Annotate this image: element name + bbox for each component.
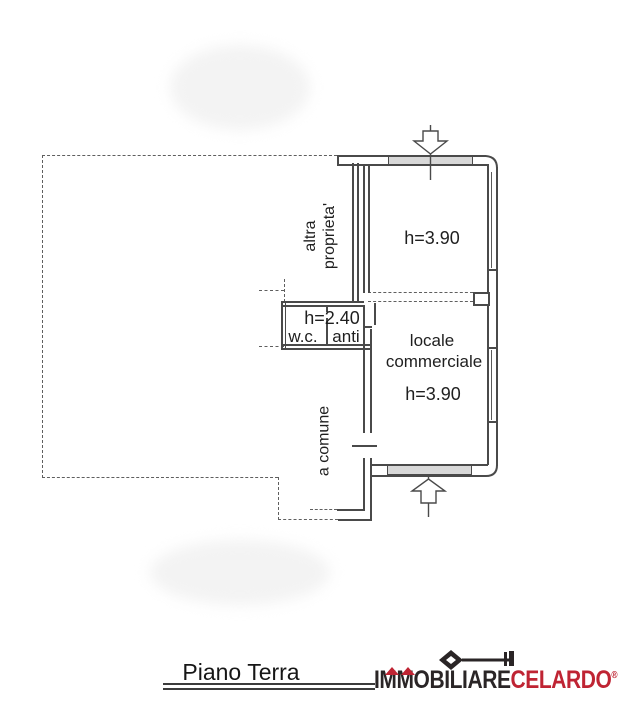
title-underline-upper [163, 683, 375, 685]
label-commercial-height: h=3.90 [405, 384, 461, 404]
entrance-arrow-up-icon [412, 477, 445, 517]
label-service-height: h=2.40 [304, 308, 360, 328]
plan-overlay [0, 0, 626, 720]
registered-mark: ® [611, 670, 617, 681]
logo-red-part: CELARDO [511, 666, 612, 694]
rounded-corner-bottom-right [486, 465, 497, 476]
label-altra-line1: altra [302, 220, 319, 251]
house-roof-icon [385, 667, 399, 675]
label-top-room-height: h=3.90 [404, 228, 460, 248]
entrance-arrow-down-icon [414, 125, 447, 180]
rounded-corner-top-right [486, 156, 497, 168]
floor-title: Piano Terra [168, 659, 314, 686]
label-commercial-line1: locale [410, 331, 454, 351]
house-roof-icon [401, 667, 415, 675]
label-wc: w.c. [288, 327, 317, 347]
key-icon [438, 649, 518, 673]
label-corridor: a comune [315, 406, 334, 476]
title-underline-lower [163, 688, 375, 690]
label-anti: anti [332, 327, 359, 347]
label-commercial-line2: commerciale [386, 352, 482, 372]
label-altra-proprieta: altra proprieta' [301, 203, 339, 269]
floorplan-canvas: altra proprieta' h=3.90 h=2.40 w.c. anti… [0, 0, 626, 720]
label-altra-line2: proprieta' [321, 203, 338, 269]
